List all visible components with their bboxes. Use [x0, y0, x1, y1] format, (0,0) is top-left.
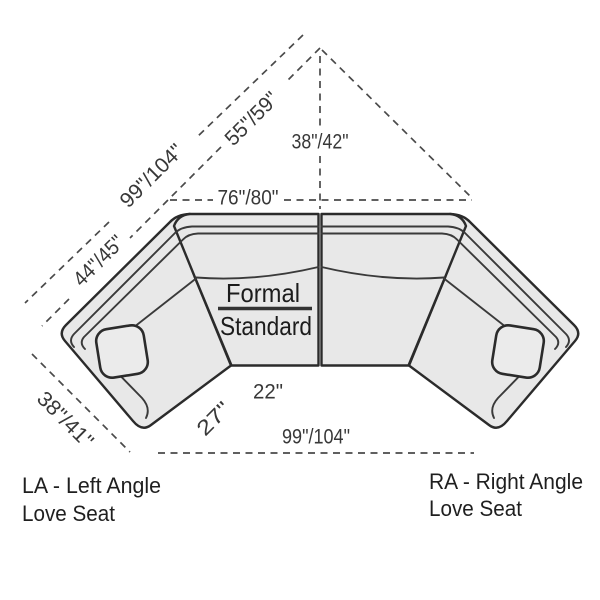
right-arm-pillow — [490, 324, 545, 380]
left-piece-label-line1: LA - Left Angle — [22, 473, 161, 498]
dim-overall-width-label: 99"/104" — [282, 426, 350, 449]
piece-labels: LA - Left Angle Love Seat RA - Right Ang… — [22, 469, 583, 526]
diagram-canvas: 99"/104" 55"/59" 44"/45" 38"/42" 76"/80"… — [0, 0, 600, 600]
style-label-line1: Formal — [226, 278, 300, 308]
dim-left-wing-depth-label: 38"/41" — [32, 387, 98, 453]
left-arm-pillow — [94, 324, 149, 380]
right-piece-label-line2: Love Seat — [429, 496, 522, 521]
dim-left-outer-label: 99"/104" — [116, 140, 189, 213]
sofa-right-half — [322, 214, 579, 428]
dim-wing-front-label: 27" — [192, 397, 235, 440]
sofa-dimension-diagram: 99"/104" 55"/59" 44"/45" 38"/42" 76"/80"… — [0, 0, 600, 600]
style-label-group: Formal Standard — [218, 278, 312, 341]
sofa — [62, 214, 579, 428]
style-label-line2: Standard — [220, 311, 312, 341]
dim-left-inner-label: 55"/59" — [221, 88, 284, 151]
left-piece-label-line2: Love Seat — [22, 501, 115, 526]
right-piece-label-line1: RA - Right Angle — [429, 469, 583, 494]
dim-seat-front-label: 22" — [253, 381, 283, 404]
dim-center-depth-label: 38"/42" — [292, 131, 349, 154]
dim-inner-width-label: 76"/80" — [218, 187, 279, 210]
dim-line-right-inner — [322, 50, 472, 198]
